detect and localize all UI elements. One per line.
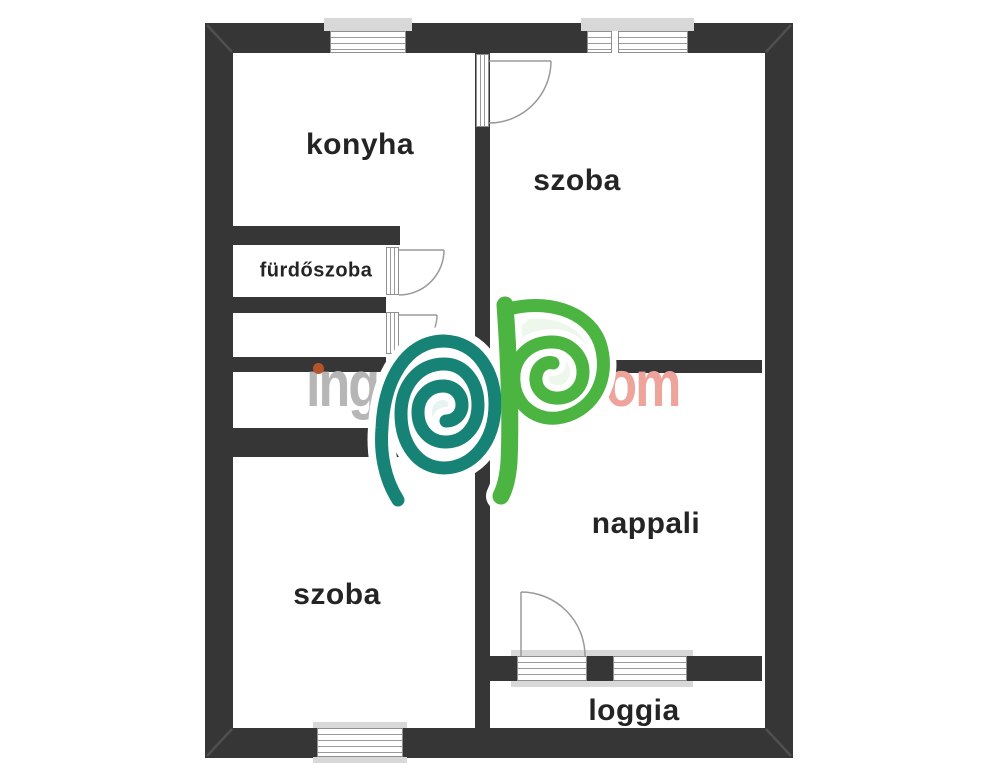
door-swing-wc: [399, 315, 437, 353]
door-swing-szoba-top: [489, 61, 551, 123]
label-nappali: nappali: [592, 507, 701, 541]
door-wc: [386, 312, 399, 354]
label-konyha: konyha: [306, 128, 414, 162]
door-swing-furdoszoba: [399, 250, 444, 295]
sill-loggia-bottom: [511, 681, 693, 687]
window-szoba-top: [587, 31, 688, 53]
logo-halo-green-stem: [501, 305, 510, 496]
window-szoba-bottom: [317, 728, 403, 757]
wall-outer-left: [205, 23, 233, 758]
watermark-text-com: .com: [566, 352, 679, 417]
sill-szoba-top-window: [581, 18, 694, 31]
door-szoba-bottom-entry: [422, 422, 480, 446]
watermark-i-dot: [313, 363, 324, 374]
floorplan-canvas: konyha szoba fürdőszoba szoba nappali lo…: [0, 0, 1000, 782]
wall-furdoszoba-bottom: [233, 297, 386, 313]
label-furdoszoba: fürdőszoba: [260, 260, 373, 283]
wall-outer-bottom: [205, 728, 793, 758]
door-szoba-top: [476, 54, 489, 127]
window-konyha: [330, 31, 406, 53]
wall-outer-top: [205, 23, 793, 53]
wall-outer-right: [765, 23, 793, 758]
door-loggia: [517, 656, 587, 681]
label-szoba-bottom: szoba: [293, 578, 381, 612]
label-szoba-top: szoba: [533, 164, 621, 198]
watermark-com: com: [578, 348, 679, 421]
door-swing-loggia: [521, 592, 585, 656]
sill-szoba-bottom-window-inner: [313, 757, 407, 763]
wall-corner-miters: [207, 25, 791, 756]
door-swing-entry: [425, 366, 481, 422]
sill-konyha-window: [324, 18, 412, 31]
watermark-period: .: [566, 348, 578, 421]
door-furdoszoba: [386, 247, 399, 295]
window-szoba-top-mullion: [611, 31, 619, 53]
wall-konyha-bottom: [233, 226, 400, 245]
watermark-text-ing: ıng: [306, 352, 378, 417]
window-loggia: [613, 656, 687, 681]
label-loggia: loggia: [588, 694, 679, 728]
wall-central-lower: [475, 428, 490, 728]
logo-spiral-green-stem-icon: [501, 305, 510, 496]
